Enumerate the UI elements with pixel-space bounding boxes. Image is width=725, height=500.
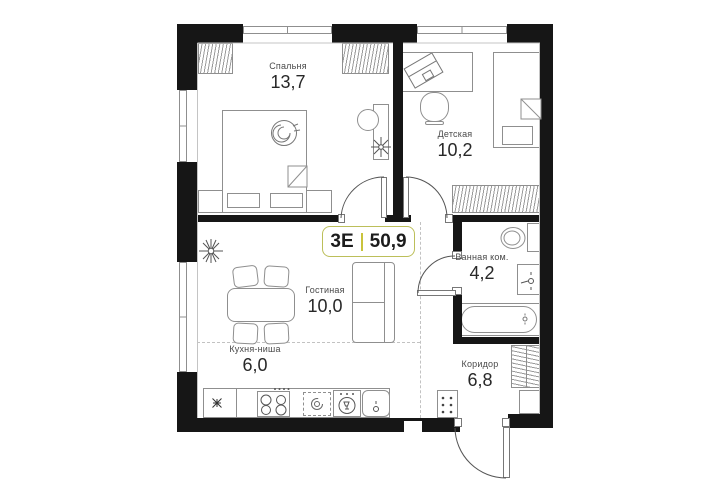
hall-cabinet [519,390,542,414]
bedroom-wardrobe-left [198,43,233,74]
children-door-arc [406,177,447,218]
door-jamb [454,418,462,427]
dining-chair [232,265,259,289]
hall-zone-dashed-line [420,222,421,418]
door-jamb [445,214,453,223]
room-area: 13,7 [238,73,338,92]
apartment-type: 3Е [330,231,353,253]
apartment-type-badge: 3Е 50,9 [322,226,415,257]
wall-segment [453,337,553,344]
room-area: 6,8 [430,371,530,390]
cooktop [257,391,290,417]
room-area: 10,0 [275,297,375,316]
wall-segment [507,24,553,43]
entry-door-arc [455,428,506,478]
room-name: Кухня-ниша [205,344,305,354]
plant-icon [199,239,223,263]
wall-segment [332,24,417,43]
children-chair [420,92,449,122]
window [179,90,187,162]
room-area: 6,0 [205,356,305,375]
wall-niche [404,421,422,432]
wall-segment [508,414,553,428]
room-label-bathroom: Ванная ком. 4,2 [432,252,532,283]
children-chair-base [425,121,444,125]
window [417,26,507,34]
wall-segment [447,215,553,222]
toilet-tank [527,223,540,252]
dining-chair [232,322,258,344]
bedroom-door-leaf [381,177,387,218]
wall-segment [177,24,197,90]
washing-machine [333,390,361,417]
dresser-drawer [227,193,260,208]
kitchen-sink [362,390,390,417]
dresser-drawer [270,193,303,208]
bedroom-wardrobe-right [342,43,389,74]
wall-segment [177,162,197,262]
badge-divider [361,233,363,251]
bedroom-door-arc [341,177,384,218]
room-name: Детская [405,129,505,139]
bed-pillow [502,126,533,145]
door-jamb [502,418,510,427]
wall-segment [393,43,403,222]
toilet-icon [501,228,525,249]
sofa-back-line [384,263,385,342]
window [179,262,187,372]
window [243,26,332,34]
children-wardrobe [452,185,540,213]
wall-segment [540,43,553,428]
room-area: 10,2 [405,141,505,160]
room-label-corridor: Коридор 6,8 [430,359,530,390]
bathroom-door-leaf [417,290,456,296]
fridge [203,388,237,418]
bedroom-chair [357,109,379,131]
entry-door-leaf [503,427,510,478]
room-name: Гостиная [275,285,375,295]
room-area: 4,2 [432,264,532,283]
wall-segment [197,215,343,222]
electrical-panel [437,390,458,418]
dishwasher-niche [303,392,331,416]
bathtub-inner [461,306,537,333]
children-door-leaf [403,177,409,218]
door-jamb [338,214,345,223]
room-name: Ванная ком. [432,252,532,262]
room-label-children: Детская 10,2 [405,129,505,160]
room-label-kitchen: Кухня-ниша 6,0 [205,344,305,375]
total-area: 50,9 [370,231,407,253]
room-label-bedroom: Спальня 13,7 [238,61,338,92]
floor-plan: Спальня 13,7 Детская 10,2 Гостиная 10,0 … [0,0,725,500]
room-label-living: Гостиная 10,0 [275,285,375,316]
dining-chair [263,322,289,344]
room-name: Спальня [238,61,338,71]
room-name: Коридор [430,359,530,369]
wall-segment [453,290,462,344]
